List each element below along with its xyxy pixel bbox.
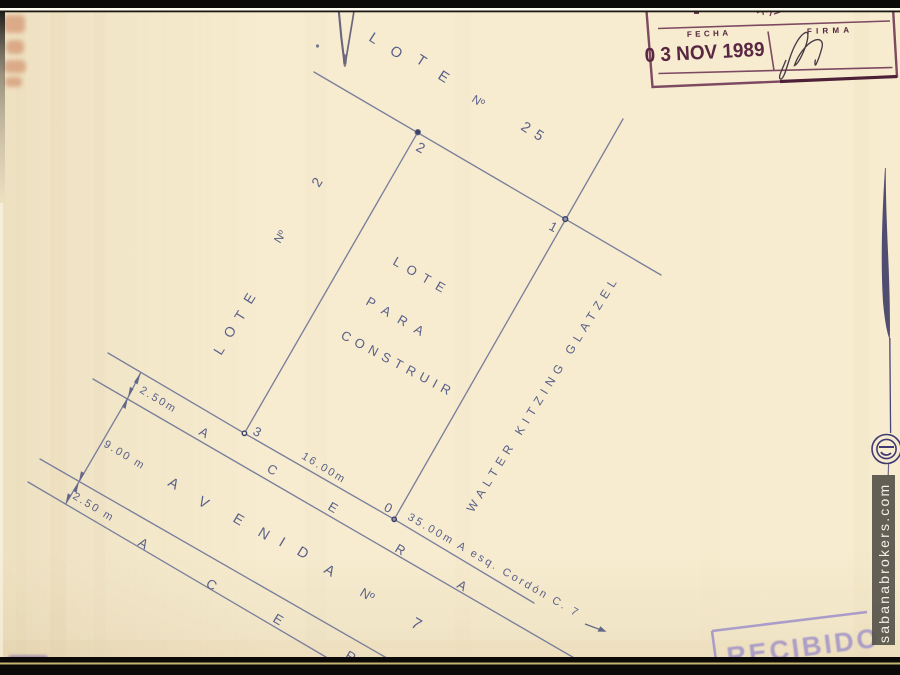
svg-text:FIRMA: FIRMA xyxy=(807,25,854,36)
svg-text:FECHA: FECHA xyxy=(687,28,732,39)
svg-text:sabanabrokers.com: sabanabrokers.com xyxy=(876,483,892,643)
